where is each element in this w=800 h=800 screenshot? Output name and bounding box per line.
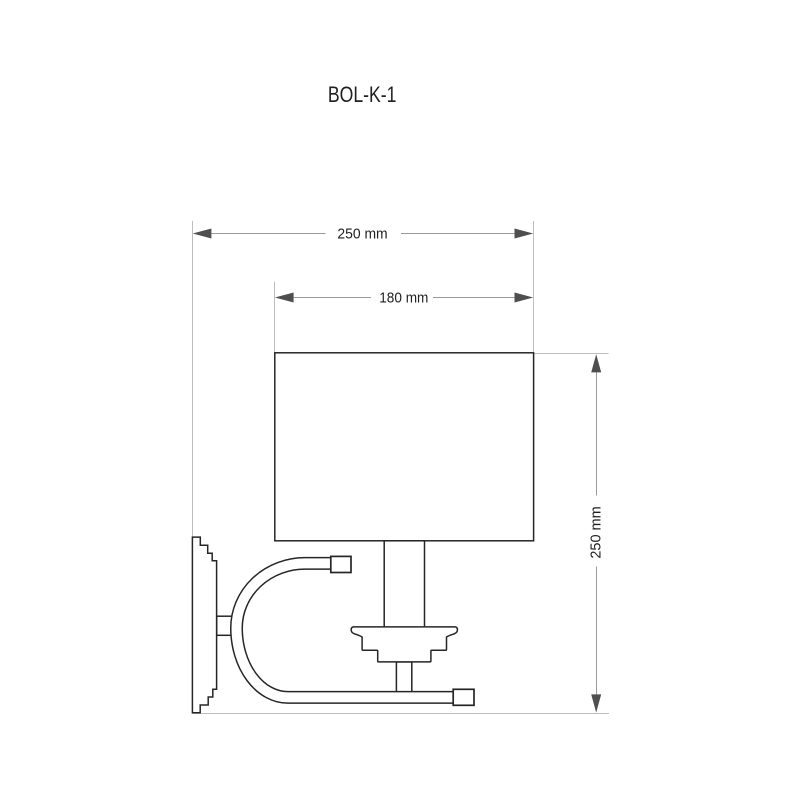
svg-text:250 mm: 250 mm — [588, 506, 605, 558]
svg-text:180 mm: 180 mm — [379, 289, 428, 306]
svg-text:250 mm: 250 mm — [337, 226, 387, 243]
svg-text:BOL-K-1: BOL-K-1 — [328, 82, 397, 107]
